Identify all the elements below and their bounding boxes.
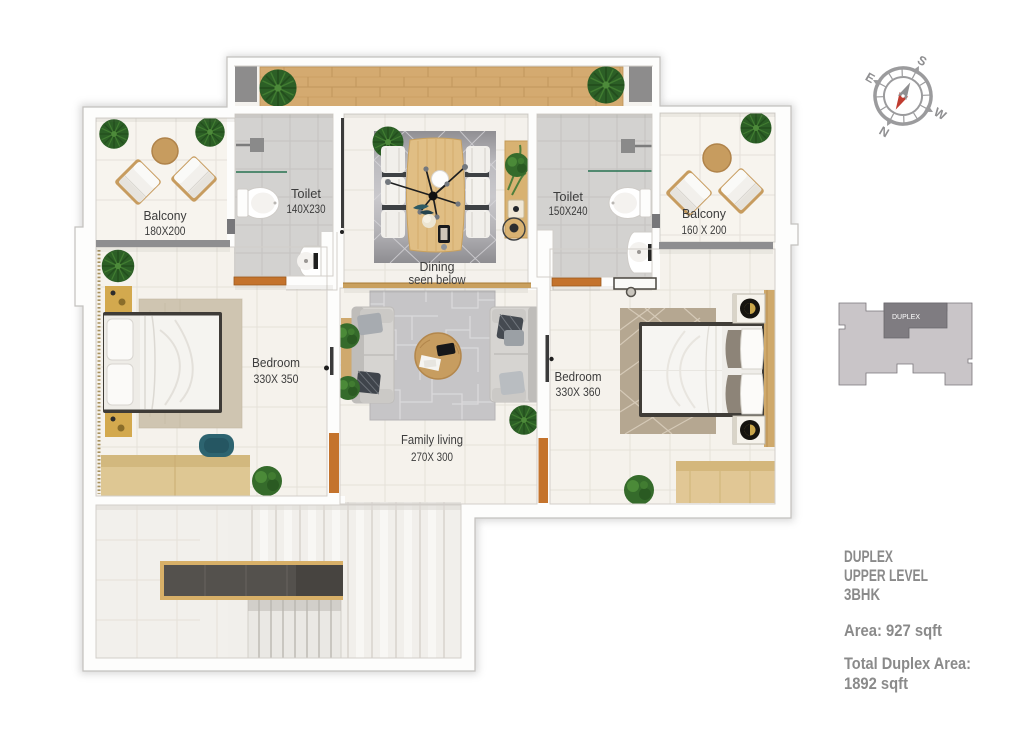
svg-text:Toilet: Toilet bbox=[553, 189, 583, 204]
svg-text:Family living: Family living bbox=[401, 432, 463, 447]
svg-text:Area: 927 sqft: Area: 927 sqft bbox=[844, 622, 942, 640]
svg-text:1892 sqft: 1892 sqft bbox=[844, 675, 908, 693]
svg-text:150X240: 150X240 bbox=[549, 206, 588, 218]
svg-text:DUPLEX: DUPLEX bbox=[844, 548, 893, 566]
svg-text:140X230: 140X230 bbox=[287, 204, 326, 216]
svg-text:330X 360: 330X 360 bbox=[556, 387, 601, 399]
svg-text:270X 300: 270X 300 bbox=[411, 452, 453, 464]
svg-text:Balcony: Balcony bbox=[682, 206, 726, 221]
svg-text:Bedroom: Bedroom bbox=[555, 369, 602, 384]
svg-text:UPPER LEVEL: UPPER LEVEL bbox=[844, 567, 928, 585]
svg-text:DUPLEX: DUPLEX bbox=[892, 312, 920, 321]
svg-text:3BHK: 3BHK bbox=[844, 586, 880, 604]
svg-text:180X200: 180X200 bbox=[145, 226, 186, 238]
svg-text:Balcony: Balcony bbox=[144, 208, 187, 223]
svg-text:160 X 200: 160 X 200 bbox=[682, 225, 727, 237]
svg-text:Toilet: Toilet bbox=[291, 186, 321, 201]
svg-text:Total Duplex Area:: Total Duplex Area: bbox=[844, 655, 971, 673]
svg-text:Bedroom: Bedroom bbox=[252, 355, 300, 370]
svg-text:seen below: seen below bbox=[409, 272, 466, 287]
svg-text:330X 350: 330X 350 bbox=[254, 374, 299, 386]
